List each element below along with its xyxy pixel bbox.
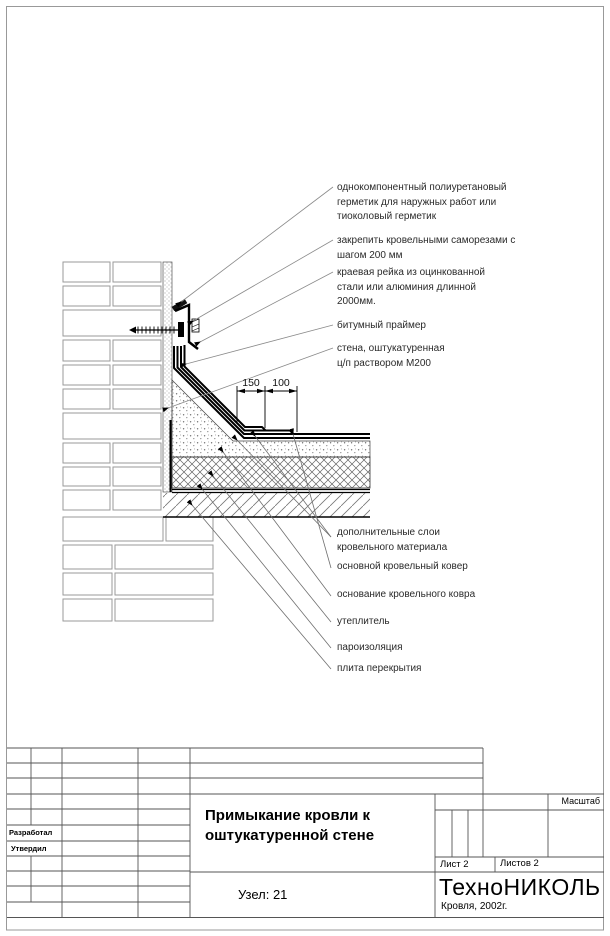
edge-rail-detail — [173, 301, 199, 349]
dimension-150: 150 — [236, 377, 266, 389]
sheets-label: Листов 2 — [500, 858, 539, 869]
annotation-insulation: утеплитель — [337, 615, 582, 630]
annotation-main-carpet: основной кровельный ковер — [337, 560, 582, 575]
annotation-additional-layers: дополнительные слои кровельного материал… — [337, 526, 582, 555]
brand-name: ТехноНИКОЛЬ — [439, 874, 601, 901]
slab-layer — [163, 493, 370, 517]
node-number: Узел: 21 — [238, 887, 287, 902]
approved-label: Утвердил — [11, 844, 47, 853]
annotation-bitumen-primer: битумный праймер — [337, 319, 582, 334]
annotation-fastening: закрепить кровельными саморезами с шагом… — [337, 234, 582, 263]
annotation-wall: стена, оштукатуренная ц/п раствором М200 — [337, 342, 582, 371]
sheet-label: Лист 2 — [440, 859, 469, 870]
annotation-edge-rail: краевая рейка из оцинкованной стали или … — [337, 266, 582, 310]
insulation-layer — [172, 457, 370, 488]
drawing-sheet: однокомпонентный полиуретановый герметик… — [0, 0, 610, 936]
brand-subtitle: Кровля, 2002г. — [441, 901, 507, 912]
annotation-slab: плита перекрытия — [337, 662, 582, 677]
technical-drawing — [0, 0, 610, 936]
dimension-100: 100 — [266, 377, 296, 389]
developed-label: Разработал — [9, 828, 52, 837]
annotation-sealant: однокомпонентный полиуретановый герметик… — [337, 181, 582, 225]
annotation-carpet-base: основание кровельного ковра — [337, 588, 582, 603]
annotation-vapor-barrier: пароизоляция — [337, 641, 582, 656]
scale-label: Масштаб — [548, 796, 600, 806]
drawing-title: Примыкание кровли к оштукатуренной стене — [205, 806, 430, 846]
dimension-lines — [237, 386, 297, 432]
